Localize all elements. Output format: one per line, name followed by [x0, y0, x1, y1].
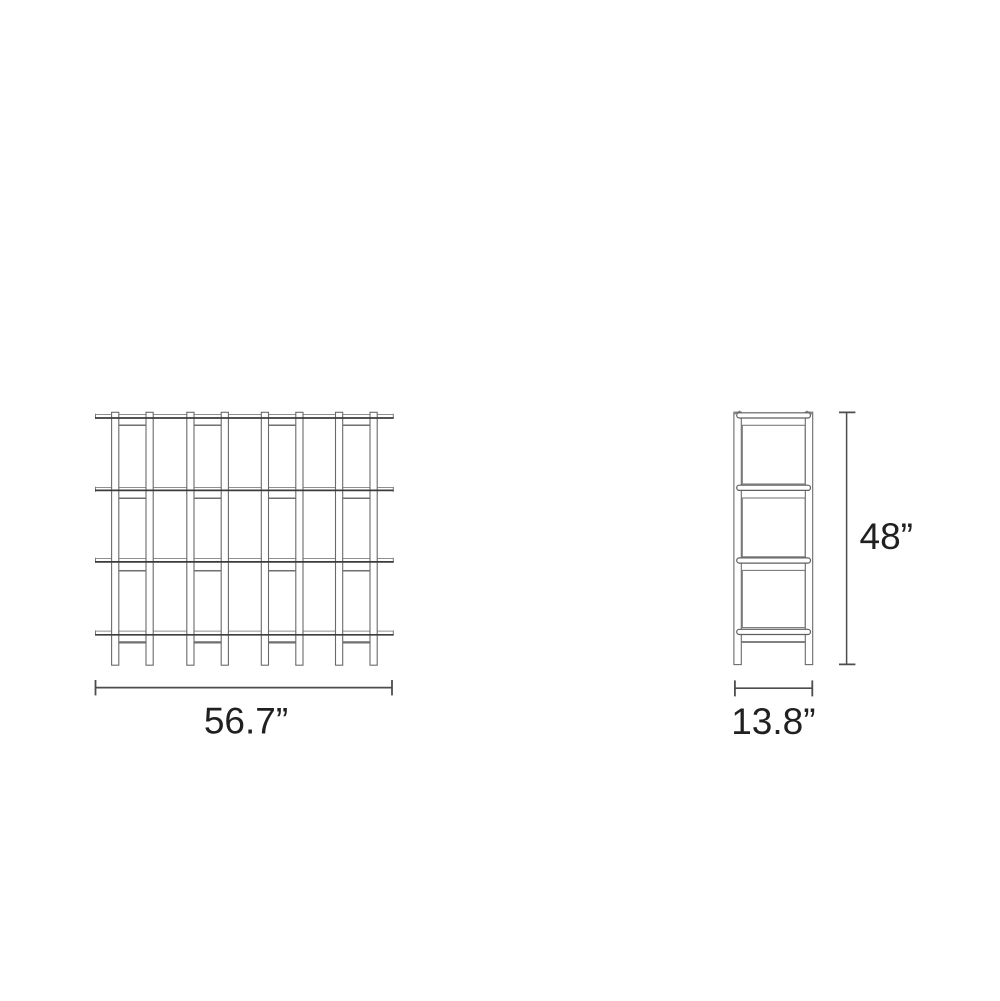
svg-text:56.7”: 56.7”	[204, 701, 288, 742]
svg-text:13.8”: 13.8”	[731, 701, 815, 742]
svg-text:48”: 48”	[860, 516, 913, 557]
